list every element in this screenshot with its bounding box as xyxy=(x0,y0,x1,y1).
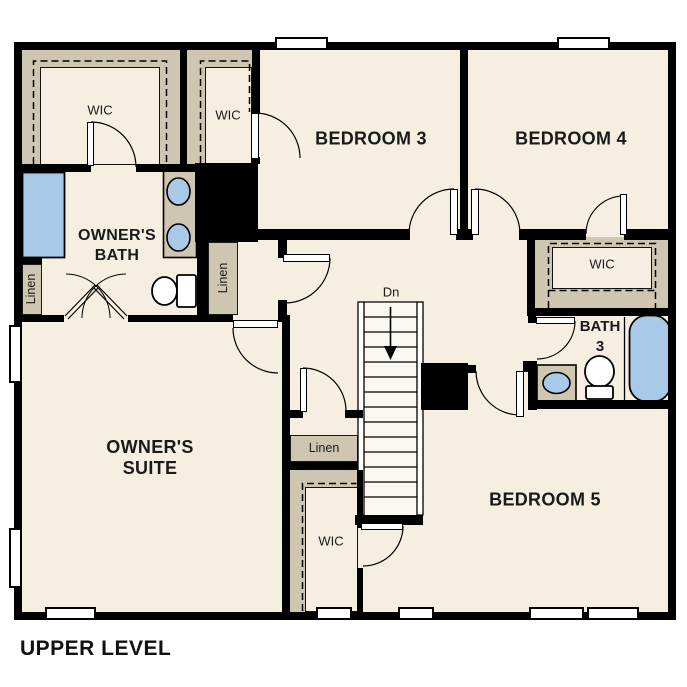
bedroom3-wic-label: WIC xyxy=(215,108,240,123)
window-suite-west-2 xyxy=(9,528,22,588)
door-leaf-bedroom3 xyxy=(450,189,458,235)
window-bedroom4 xyxy=(557,37,610,50)
bath3-label-line1: BATH xyxy=(580,318,621,335)
wall-between-wics xyxy=(180,50,187,165)
owners-suite-label-line1: OWNER'S xyxy=(106,437,193,457)
door-leaf-bath3 xyxy=(536,317,575,324)
door-leaf-bedroom3-wic xyxy=(251,113,259,159)
door-leaf-bedroom4-wic xyxy=(620,194,627,235)
wall-bedroom4-wic-west xyxy=(527,237,535,312)
stair-direction-label: Dn xyxy=(383,285,400,300)
bedroom4-label: BEDROOM 4 xyxy=(515,129,627,150)
floor-plan-upper-level: BEDROOM 3 BEDROOM 4 BEDROOM 5 OWNER'S SU… xyxy=(0,0,687,687)
door-leaf-owners-wic xyxy=(87,122,94,166)
bedroom5-label: BEDROOM 5 xyxy=(489,490,601,511)
wall-bedroom3-4-divider xyxy=(460,50,468,234)
bath-linen-label: Linen xyxy=(24,274,38,305)
wall-suite-north-c xyxy=(278,315,290,322)
bedroom5-wic-label: WIC xyxy=(318,534,343,549)
bath3-label-line2: 3 xyxy=(596,338,604,355)
door-leaf-hall-linen xyxy=(300,368,307,412)
wall-bath-north-b xyxy=(136,164,196,172)
owners-bath-label-line1: OWNER'S xyxy=(78,227,156,244)
wall-vestibule-door-stub-bottom xyxy=(278,300,287,316)
wall-bath-north-a xyxy=(14,164,91,172)
window-bedroom5-south-2 xyxy=(529,607,584,620)
owners-suite-label: OWNER'S SUITE xyxy=(106,437,193,479)
window-bedroom3 xyxy=(275,37,328,50)
owners-bath-label-line2: BATH xyxy=(95,247,139,264)
staircase-area xyxy=(358,302,423,515)
window-bedroom5-wic xyxy=(316,607,352,620)
chase-black-box-center xyxy=(421,363,468,410)
hall-linen-label: Linen xyxy=(309,441,340,455)
wall-suite-north-a xyxy=(14,315,64,322)
door-leaf-bedroom4 xyxy=(471,189,479,235)
bath3-label: BATH 3 xyxy=(580,317,621,357)
wall-suite-linen-west xyxy=(197,242,208,315)
plan-title: UPPER LEVEL xyxy=(20,637,171,661)
wall-bath3-west-stub xyxy=(528,316,536,323)
wall-suite-north-b xyxy=(128,315,233,322)
door-leaf-bedroom5 xyxy=(516,371,524,417)
wall-bedroom5-door-stub xyxy=(523,361,537,372)
window-bedroom5-south-3 xyxy=(587,607,639,620)
wall-bedroom3-south xyxy=(250,229,410,240)
wall-hall-linen-south xyxy=(283,462,358,470)
owners-bath-label: OWNER'S BATH xyxy=(78,226,156,266)
bedroom3-label: BEDROOM 3 xyxy=(315,129,427,150)
bedroom4-wic-label: WIC xyxy=(589,257,614,272)
owners-suite-label-line2: SUITE xyxy=(123,458,178,478)
door-leaf-bedroom5-wic xyxy=(361,523,403,530)
wall-exterior-right xyxy=(668,42,676,620)
window-suite-west-1 xyxy=(9,325,22,383)
window-bedroom5-south-1 xyxy=(398,607,434,620)
chase-black-box-west xyxy=(195,163,258,242)
bedroom5-wic-interior xyxy=(305,487,358,612)
owners-wic-label: WIC xyxy=(87,103,112,118)
wall-bedroom4-wic-south xyxy=(527,308,676,316)
door-leaf-suite-vestibule xyxy=(283,254,330,262)
wall-bath-linen-north xyxy=(14,257,42,264)
wall-hall-linen-door-stub-east xyxy=(345,410,363,418)
wall-bedroom5-wic-east-upper xyxy=(357,470,363,528)
wall-bedroom5-north-stub xyxy=(468,365,476,373)
wall-bath3-south xyxy=(528,400,676,409)
wall-bedroom5-wic-east-lower xyxy=(357,568,363,612)
window-suite-south xyxy=(45,607,96,620)
wall-bedroom3-west-upper xyxy=(252,50,260,114)
wall-bedroom4-south-b xyxy=(624,229,676,240)
door-leaf-suite-entry xyxy=(233,320,278,328)
suite-entry-linen-label: Linen xyxy=(216,263,230,294)
